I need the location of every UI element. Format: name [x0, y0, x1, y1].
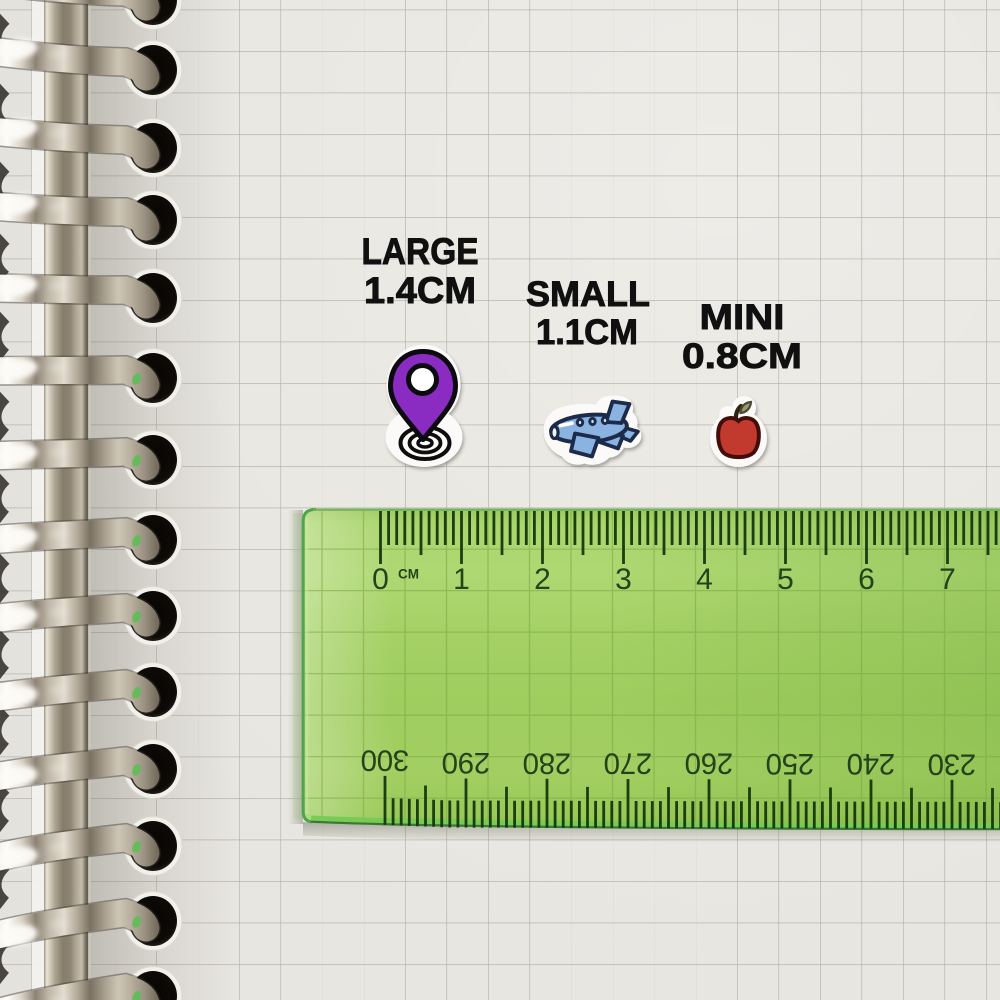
svg-text:280: 280	[523, 746, 571, 779]
svg-text:CM: CM	[398, 567, 419, 582]
svg-text:0.8CM: 0.8CM	[682, 337, 802, 376]
svg-text:240: 240	[847, 747, 895, 780]
svg-text:5: 5	[777, 563, 794, 596]
svg-text:7: 7	[939, 563, 956, 596]
svg-text:290: 290	[442, 746, 490, 779]
svg-text:1.4CM: 1.4CM	[364, 270, 476, 311]
svg-text:300: 300	[361, 743, 409, 776]
svg-text:2: 2	[534, 563, 551, 596]
svg-text:270: 270	[604, 747, 652, 780]
svg-text:SMALL: SMALL	[526, 275, 650, 314]
svg-text:1: 1	[453, 563, 470, 596]
svg-text:250: 250	[766, 747, 814, 780]
svg-text:6: 6	[858, 563, 875, 596]
svg-text:0: 0	[372, 563, 389, 596]
svg-text:230: 230	[928, 747, 976, 780]
svg-text:3: 3	[615, 563, 632, 596]
svg-text:MINI: MINI	[700, 298, 785, 337]
svg-text:260: 260	[685, 747, 733, 780]
svg-text:4: 4	[696, 563, 713, 596]
svg-text:LARGE: LARGE	[362, 231, 479, 272]
svg-text:1.1CM: 1.1CM	[536, 313, 638, 352]
